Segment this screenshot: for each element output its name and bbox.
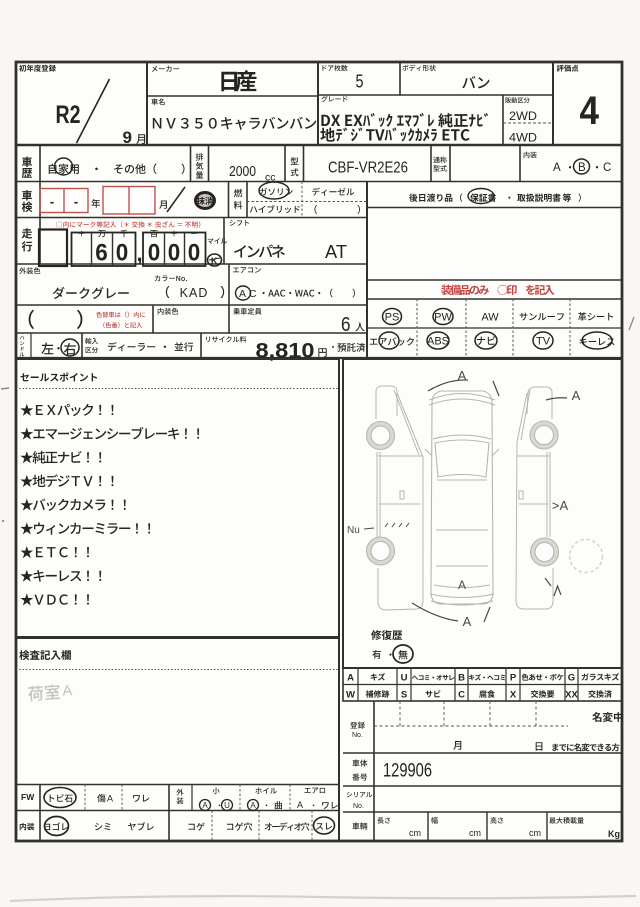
svg-text:2WD: 2WD (509, 109, 537, 123)
svg-text:TV: TV (536, 336, 551, 348)
svg-text:4WD: 4WD (509, 131, 537, 145)
svg-text:A: A (347, 673, 354, 684)
svg-text:0: 0 (116, 240, 129, 267)
svg-text:,: , (136, 241, 142, 266)
svg-text:5: 5 (356, 72, 364, 92)
svg-text:A: A (239, 288, 246, 300)
svg-text:-: - (50, 194, 54, 209)
svg-text:B: B (458, 673, 465, 684)
svg-text:2000: 2000 (229, 164, 256, 180)
svg-text:U: U (401, 673, 408, 684)
svg-text:A: A (572, 388, 581, 403)
svg-text:0: 0 (188, 240, 201, 267)
svg-text:G: G (568, 673, 575, 684)
svg-text:AT: AT (325, 242, 347, 262)
svg-text:>A: >A (552, 498, 569, 513)
svg-text:KAD: KAD (180, 286, 209, 300)
svg-text:cm: cm (409, 828, 421, 838)
svg-text:K: K (211, 256, 218, 266)
svg-text:C: C (603, 162, 611, 174)
svg-text:U: U (224, 801, 230, 810)
svg-text:P: P (510, 673, 517, 684)
svg-text:0: 0 (148, 240, 161, 267)
svg-text:4: 4 (580, 89, 600, 133)
svg-text:PS: PS (385, 312, 400, 324)
svg-text:6: 6 (95, 240, 108, 267)
svg-text:Kg: Kg (608, 829, 620, 839)
svg-text:129906: 129906 (383, 761, 432, 782)
svg-text:9: 9 (123, 128, 132, 147)
svg-text:cm: cm (469, 828, 481, 838)
svg-text:A: A (458, 578, 466, 592)
svg-text:S: S (401, 690, 407, 701)
svg-text:cm: cm (529, 828, 541, 838)
svg-text:AW: AW (481, 312, 499, 324)
svg-text:Nu: Nu (347, 525, 360, 536)
svg-text:W: W (346, 690, 355, 701)
svg-text:C: C (458, 690, 465, 701)
svg-text:R2: R2 (56, 101, 81, 129)
svg-text:6: 6 (341, 314, 351, 336)
svg-text:0: 0 (168, 240, 181, 267)
svg-text:X: X (510, 690, 517, 701)
svg-text:XX: XX (565, 690, 578, 701)
svg-text:A: A (62, 683, 73, 700)
svg-text:A: A (553, 162, 561, 174)
svg-text:No.: No. (353, 803, 364, 810)
svg-text:A: A (250, 801, 256, 810)
svg-text:A: A (107, 794, 113, 804)
svg-text:CBF-VR2E26: CBF-VR2E26 (328, 160, 408, 177)
svg-text:FW: FW (21, 792, 35, 802)
svg-text:B: B (578, 162, 586, 174)
svg-text:A: A (463, 614, 472, 629)
svg-text:A: A (202, 801, 208, 810)
svg-text:-: - (74, 194, 78, 209)
svg-text:A: A (297, 800, 303, 810)
svg-text:No.: No. (352, 732, 363, 739)
